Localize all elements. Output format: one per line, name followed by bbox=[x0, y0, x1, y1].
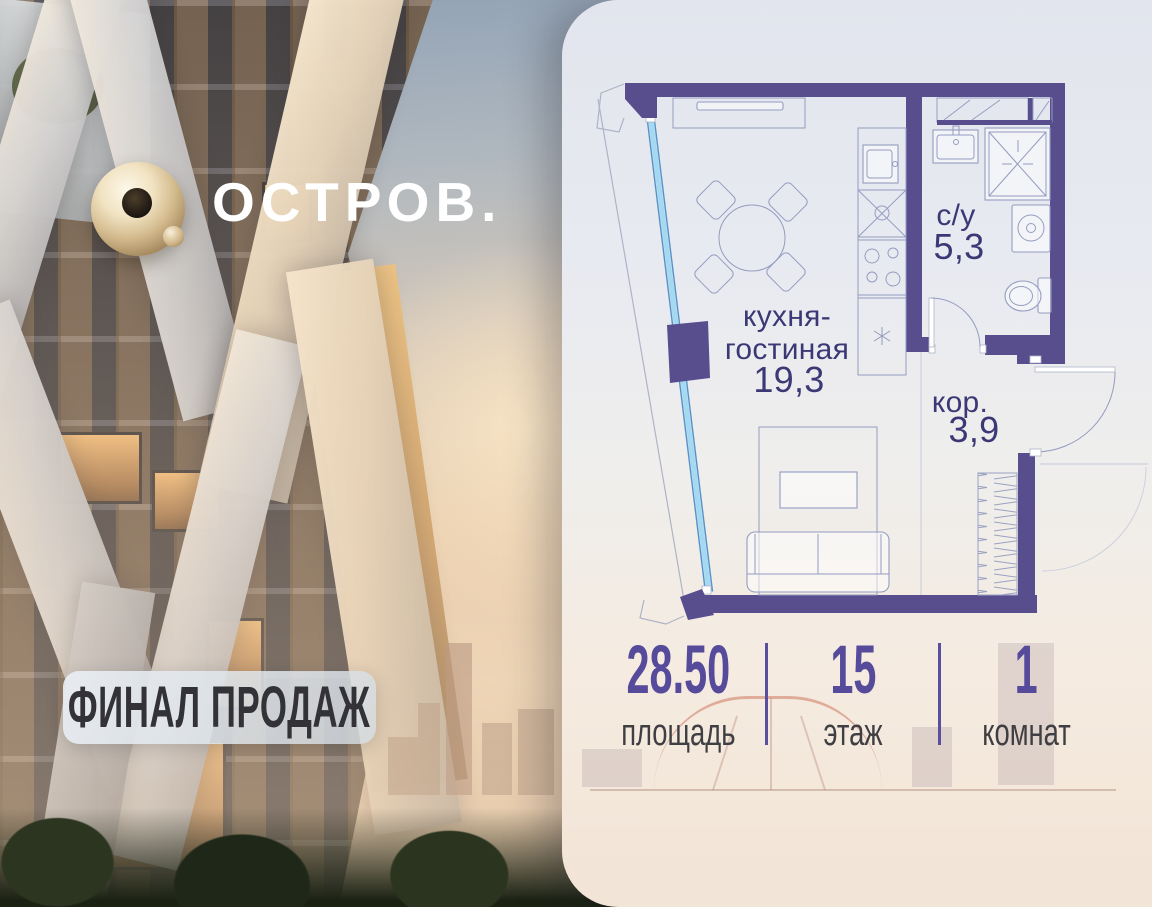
promo-banner: ОСТРОВ. ФИНАЛ ПРОДАЖ bbox=[0, 0, 1152, 907]
plan-kitchen-fixtures bbox=[858, 128, 906, 375]
brand-wordmark: ОСТРОВ. bbox=[212, 172, 502, 232]
stat-rooms: 1 комнат bbox=[941, 638, 1112, 752]
stat-floor-label: этаж bbox=[768, 714, 939, 752]
corridor-area: 3,9 bbox=[949, 409, 1000, 450]
bathroom-area: 5,3 bbox=[934, 226, 985, 267]
apartment-card: кухня- гостиная 19,3 с/у 5,3 кор. 3,9 28… bbox=[562, 0, 1152, 907]
apartment-stats: 28.50 площадь 15 этаж 1 комнат bbox=[562, 638, 1152, 752]
logo-dot-icon bbox=[163, 226, 184, 247]
stat-rooms-label: комнат bbox=[941, 714, 1112, 752]
floor-plan: кухня- гостиная 19,3 с/у 5,3 кор. 3,9 bbox=[562, 0, 1152, 907]
stat-floor-value: 15 bbox=[768, 638, 939, 702]
kitchen-area: 19,3 bbox=[753, 359, 824, 400]
stat-area: 28.50 площадь bbox=[592, 638, 765, 752]
final-sales-badge: ФИНАЛ ПРОДАЖ bbox=[63, 671, 376, 744]
stat-area-label: площадь bbox=[592, 714, 765, 752]
kitchen-label-line1: кухня- bbox=[743, 300, 831, 333]
plan-wardrobe bbox=[978, 473, 1017, 595]
stat-area-value: 28.50 bbox=[592, 638, 765, 702]
stat-floor: 15 этаж bbox=[768, 638, 939, 752]
badge-label: ФИНАЛ ПРОДАЖ bbox=[68, 674, 370, 741]
stat-rooms-value: 1 bbox=[941, 638, 1112, 702]
logo-sphere-hole bbox=[122, 188, 152, 218]
